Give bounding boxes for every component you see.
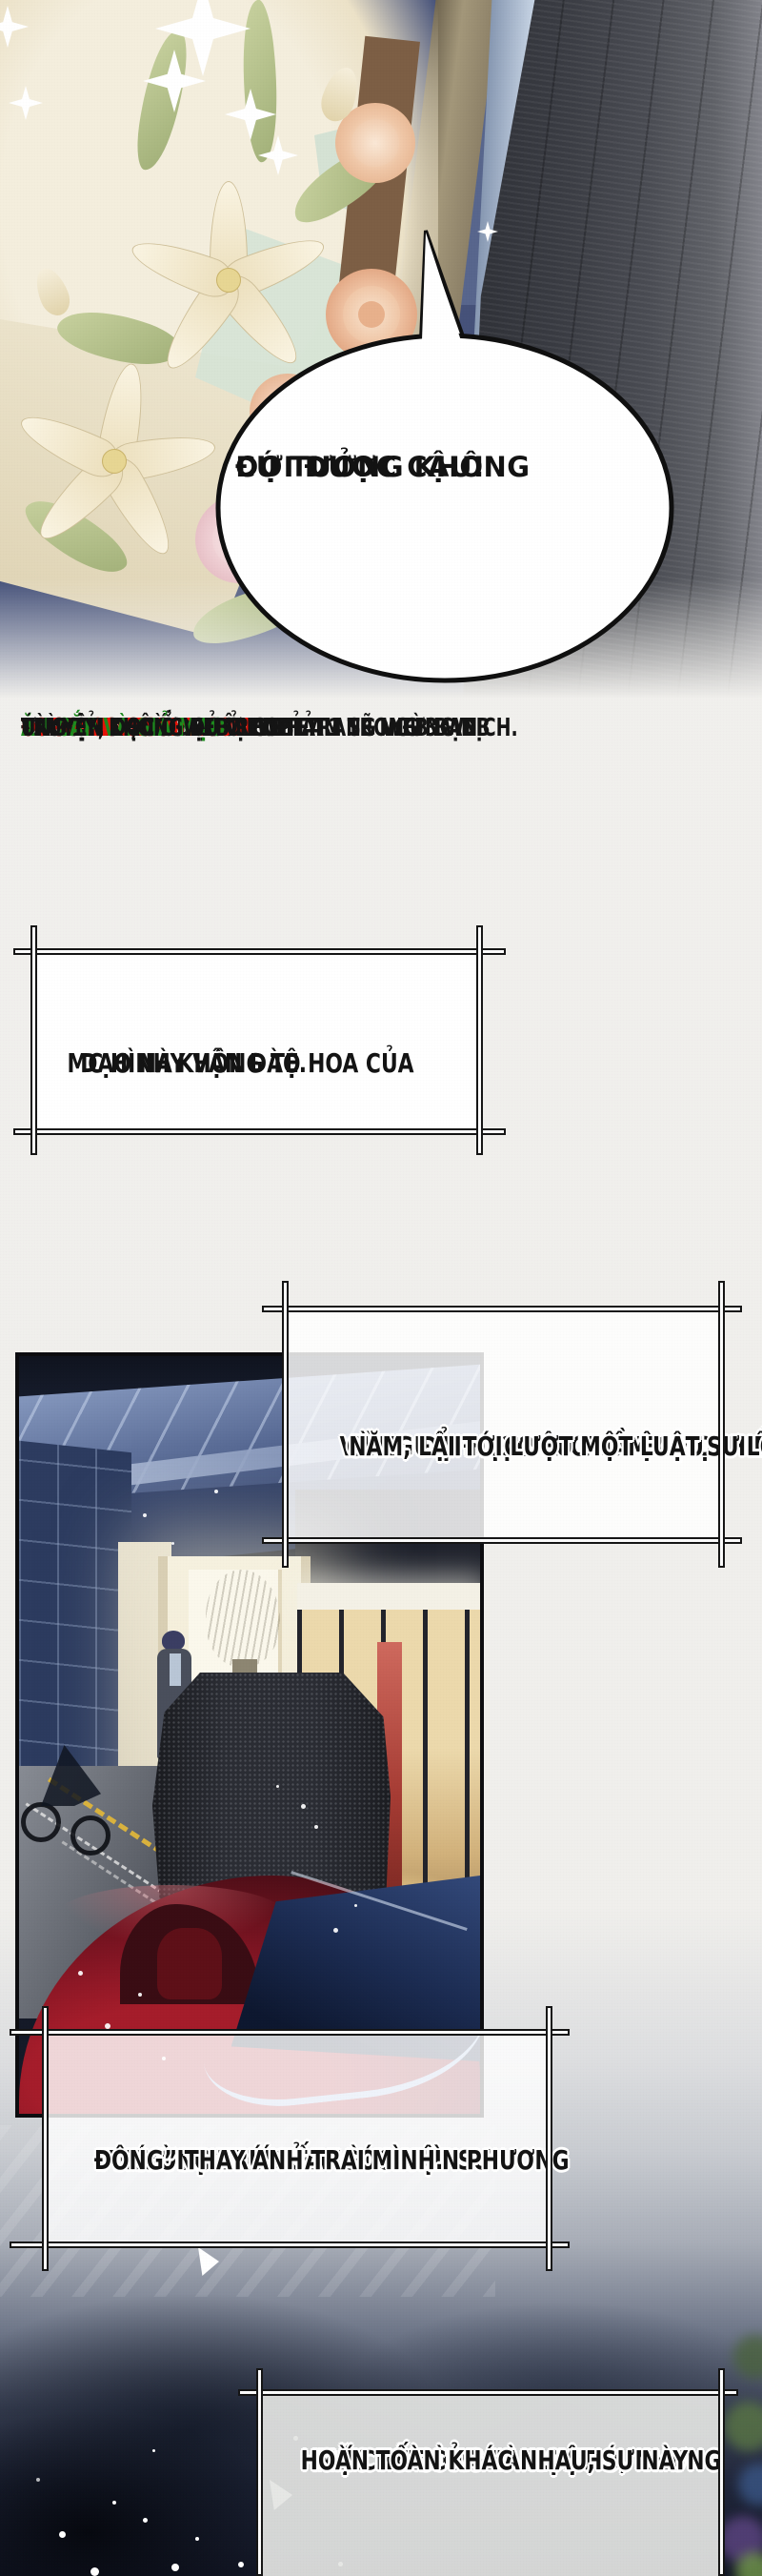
frame-line bbox=[476, 925, 483, 1155]
caption-box-3: PHÓ NGỌC TRÍ ĐẾN LÀM LUẬT SƯ THƯỜNG TRÚ … bbox=[45, 2032, 549, 2244]
frame-line bbox=[256, 2368, 263, 2576]
man-head bbox=[206, 1570, 280, 1667]
speech-line: ĐỢI ĐƯỢC CẬU! bbox=[235, 446, 486, 489]
frame-line bbox=[42, 2006, 49, 2271]
bicycle-wheel bbox=[21, 1802, 61, 1842]
caption-line: HOÀN TOÀN KHÁC NHAU, bbox=[301, 2440, 595, 2482]
storefront-glow bbox=[297, 1583, 480, 1610]
frame-line bbox=[30, 925, 37, 1155]
bokeh-dot bbox=[143, 2518, 148, 2523]
bokeh-dot bbox=[195, 2537, 199, 2541]
frame-line bbox=[262, 1537, 742, 1544]
frame-line bbox=[13, 1128, 506, 1135]
sparkle-dot bbox=[276, 1785, 279, 1788]
caption-box-1: DẠO NÀY VẬN ĐÀO HOA CỦA MC HÌNH KHÔNG TỆ… bbox=[33, 951, 479, 1131]
frame-line bbox=[282, 1281, 289, 1568]
bokeh-dot bbox=[36, 2478, 40, 2482]
frame-line bbox=[546, 2006, 552, 2271]
doorman-hair bbox=[162, 1631, 185, 1651]
frame-line bbox=[10, 2241, 570, 2248]
frame-line bbox=[13, 948, 506, 955]
bokeh-dot bbox=[59, 2531, 66, 2538]
sparkle-dot bbox=[314, 1825, 318, 1829]
sparkle-dot bbox=[301, 1804, 306, 1809]
caption-box-4: MẶC DÙ CÙNG LÀ HỌ PHÓ, NHƯNG KHÍ CHẤT CỦ… bbox=[259, 2392, 721, 2576]
frame-line bbox=[10, 2029, 570, 2036]
caption-line: ĐÔNG” THAY ANH TRAI MÌNH. bbox=[94, 2139, 444, 2181]
sparkle-dot bbox=[143, 1513, 147, 1517]
bicycle-wheel bbox=[70, 1815, 110, 1856]
sparkle-dot bbox=[171, 1542, 174, 1545]
caption-box-2: VỪA ĐUỔI ĐƯỢC CAO LUYỆN HỌC CÙNG ĐẠI HỌC… bbox=[285, 1308, 721, 1540]
caption-line: NĂM, LẠI TỚI LƯỢT MỘT LUẬT SƯ LỚN. bbox=[349, 1425, 762, 1468]
sparkle-dot bbox=[354, 1904, 357, 1907]
comic-page: CỨ TƯỞNG KHÔNG ĐỢI ĐƯỢC CẬU! VUI LÒNG NH… bbox=[0, 0, 762, 2576]
doorman-shirt bbox=[170, 1653, 181, 1686]
frame-line bbox=[718, 2368, 725, 2576]
frame-line bbox=[718, 1281, 725, 1568]
bokeh-dot bbox=[90, 2567, 99, 2576]
sparkle-dot bbox=[333, 1928, 338, 1933]
lily-center bbox=[102, 449, 127, 474]
frame-line bbox=[262, 1306, 742, 1312]
sparkle-dot bbox=[138, 1993, 142, 1997]
sparkle-dot bbox=[78, 1971, 83, 1976]
bokeh-dot bbox=[112, 2501, 116, 2505]
bokeh-dot bbox=[238, 2562, 244, 2567]
bokeh-dot bbox=[152, 2449, 155, 2452]
frame-line bbox=[238, 2389, 738, 2396]
bokeh-dot bbox=[171, 2564, 179, 2571]
notice-text: TRUYỆN KHÔNG ĐỦ VIEW TEAM SẼ NGỪNG DỊCH. bbox=[21, 716, 518, 742]
car-seat bbox=[157, 1928, 222, 1999]
sparkle-dot bbox=[214, 1490, 218, 1493]
caption-line: MC HÌNH KHÔNG TỆ. bbox=[67, 1042, 307, 1085]
